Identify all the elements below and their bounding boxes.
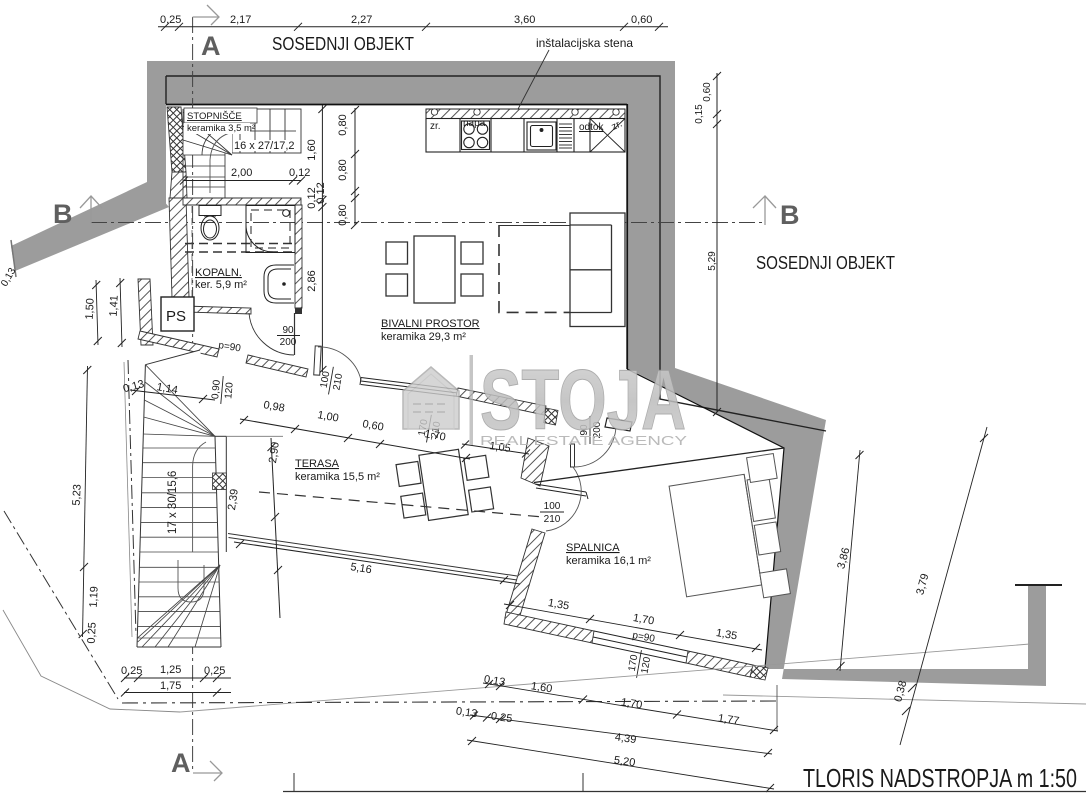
svg-text:0,25: 0,25 [121, 665, 142, 677]
svg-text:0,98: 0,98 [262, 399, 285, 415]
svg-text:2,90: 2,90 [267, 441, 282, 464]
svg-text:0,80: 0,80 [337, 204, 349, 225]
svg-text:B: B [53, 199, 73, 229]
svg-text:0,12: 0,12 [315, 182, 327, 203]
svg-text:odtok: odtok [579, 122, 604, 133]
svg-text:keramika 16,1 m²: keramika 16,1 m² [566, 555, 651, 567]
svg-text:0,25: 0,25 [160, 14, 181, 26]
svg-text:B: B [780, 200, 800, 230]
svg-text:5,20: 5,20 [613, 754, 636, 769]
svg-text:2,27: 2,27 [351, 14, 372, 26]
svg-text:4,39: 4,39 [614, 731, 637, 746]
svg-text:keramika 29,3 m²: keramika 29,3 m² [381, 331, 466, 343]
svg-text:A: A [201, 31, 221, 61]
svg-text:p=90: p=90 [218, 340, 242, 354]
svg-text:p=90: p=90 [631, 630, 656, 645]
svg-text:0,12: 0,12 [289, 167, 310, 179]
svg-text:0,60: 0,60 [361, 418, 384, 434]
svg-text:1,00: 1,00 [316, 409, 339, 425]
svg-text:1,50: 1,50 [84, 298, 97, 320]
svg-text:120: 120 [640, 656, 654, 675]
svg-text:210: 210 [331, 372, 345, 391]
svg-text:keramika 3,5 m²: keramika 3,5 m² [187, 123, 255, 134]
svg-text:1,35: 1,35 [715, 627, 738, 643]
svg-text:TLORIS NADSTROPJA m 1:50: TLORIS NADSTROPJA m 1:50 [803, 763, 1077, 793]
svg-text:1,35: 1,35 [547, 597, 570, 613]
svg-text:0,60: 0,60 [702, 82, 713, 102]
svg-text:PS: PS [166, 308, 186, 325]
svg-text:3,60: 3,60 [514, 14, 535, 26]
svg-text:0,25: 0,25 [86, 622, 99, 644]
svg-text:TERASA: TERASA [295, 458, 340, 470]
svg-text:2,39: 2,39 [226, 488, 241, 511]
svg-text:3,79: 3,79 [914, 572, 931, 596]
svg-text:0,25: 0,25 [204, 665, 225, 677]
svg-text:0,15: 0,15 [694, 104, 705, 124]
svg-text:SOSEDNJI OBJEKT: SOSEDNJI OBJEKT [272, 33, 414, 54]
svg-text:1,70: 1,70 [620, 696, 643, 711]
svg-text:KOPALN.: KOPALN. [195, 267, 242, 279]
svg-text:5,16: 5,16 [350, 561, 373, 576]
svg-text:0,60: 0,60 [631, 14, 652, 26]
svg-text:SOSEDNJI OBJEKT: SOSEDNJI OBJEKT [756, 252, 895, 273]
svg-text:1,25: 1,25 [160, 664, 181, 676]
svg-text:ker. 5,9 m²: ker. 5,9 m² [195, 279, 247, 291]
svg-text:90: 90 [282, 325, 294, 336]
svg-text:2,17: 2,17 [230, 14, 251, 26]
svg-text:16 x 27/17,2: 16 x 27/17,2 [234, 140, 295, 152]
svg-text:100: 100 [544, 501, 561, 512]
svg-text:210: 210 [544, 514, 561, 525]
svg-text:napa: napa [463, 118, 486, 129]
svg-text:0,13: 0,13 [455, 705, 478, 720]
svg-text:0,80: 0,80 [337, 114, 349, 135]
svg-text:2,86: 2,86 [306, 270, 318, 291]
svg-text:keramika 15,5 m²: keramika 15,5 m² [295, 471, 380, 483]
svg-text:200: 200 [280, 337, 297, 348]
svg-text:zr.: zr. [430, 121, 441, 132]
svg-text:1,77: 1,77 [717, 712, 740, 727]
svg-text:1,60: 1,60 [530, 680, 553, 695]
svg-text:2,00: 2,00 [231, 167, 252, 179]
svg-text:BIVALNI PROSTOR: BIVALNI PROSTOR [381, 318, 480, 330]
svg-text:5,29: 5,29 [707, 251, 718, 271]
svg-text:1,41: 1,41 [108, 295, 121, 317]
svg-text:REAL ESTATE AGENCY: REAL ESTATE AGENCY [480, 434, 688, 448]
svg-text:1,70: 1,70 [632, 612, 655, 628]
svg-text:inštalacijska stena: inštalacijska stena [536, 36, 633, 50]
svg-text:0,25: 0,25 [490, 710, 513, 725]
svg-text:A: A [171, 748, 191, 778]
svg-text:0,80: 0,80 [337, 159, 349, 180]
svg-text:1,60: 1,60 [306, 139, 318, 160]
svg-text:STOPNIŠČE: STOPNIŠČE [187, 111, 242, 122]
svg-text:17 x 30/15,6: 17 x 30/15,6 [167, 471, 179, 534]
svg-text:1,19: 1,19 [88, 586, 101, 608]
svg-text:1,75: 1,75 [160, 680, 181, 692]
svg-text:SPALNICA: SPALNICA [566, 542, 620, 554]
svg-text:120: 120 [223, 381, 235, 399]
svg-text:5,23: 5,23 [71, 484, 84, 506]
